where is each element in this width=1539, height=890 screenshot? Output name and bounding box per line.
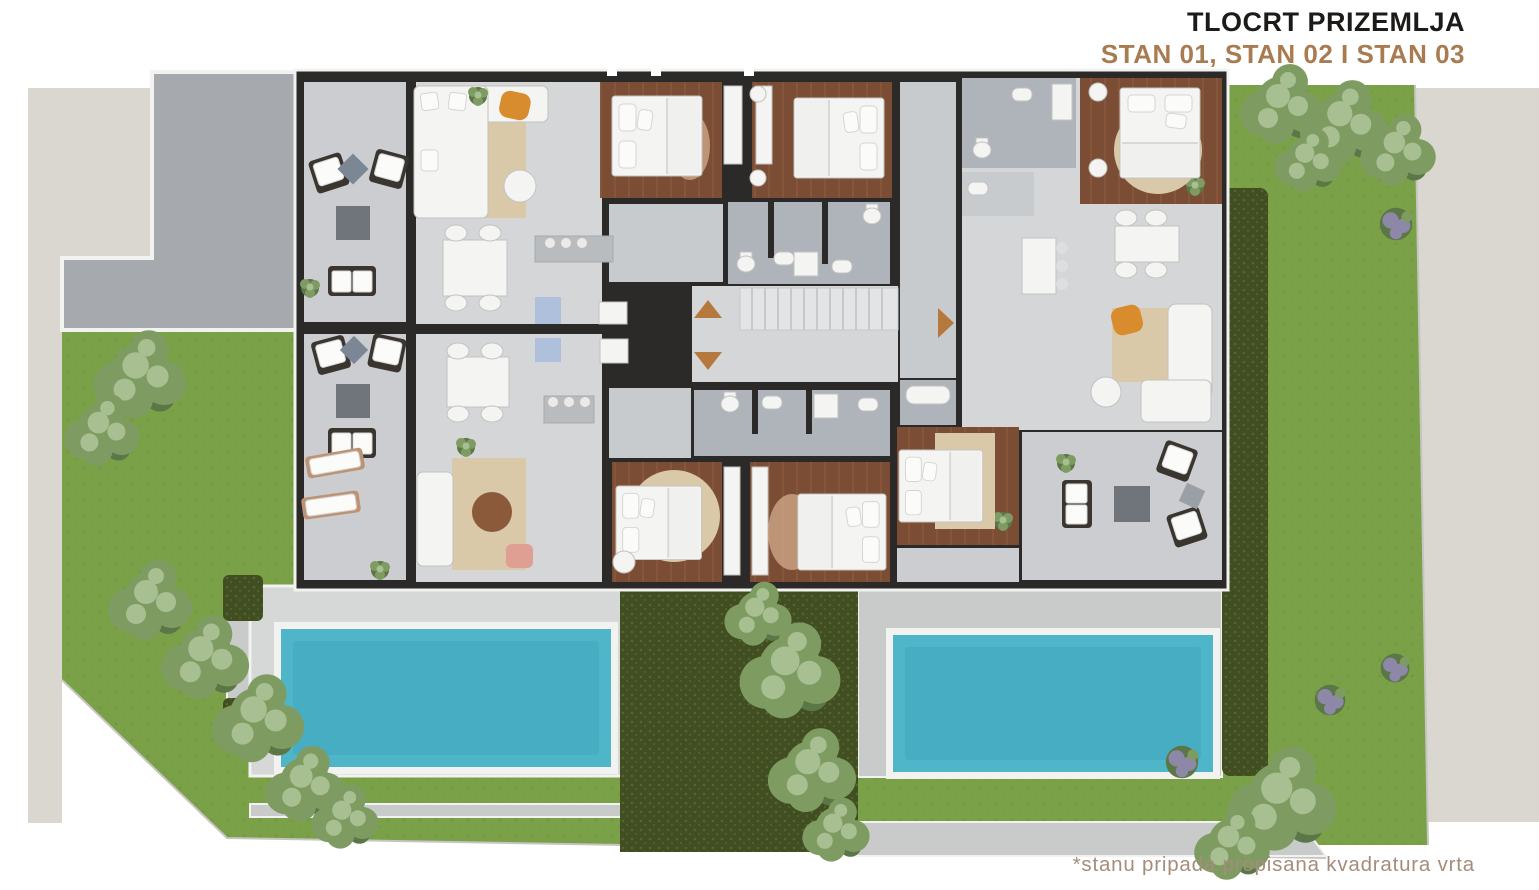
bed	[798, 494, 886, 570]
page-title: TLOCRT PRIZEMLJA	[1101, 8, 1465, 37]
pouf	[504, 170, 536, 202]
dining-table	[447, 357, 509, 407]
nightstand	[1089, 159, 1107, 177]
hedge	[223, 575, 263, 621]
dining-table	[443, 240, 507, 296]
rug-accent	[472, 492, 512, 532]
nightstand	[613, 551, 635, 573]
sofa	[417, 472, 453, 566]
staircase	[740, 288, 898, 330]
dining-table	[1115, 226, 1179, 262]
coffee-table	[1114, 486, 1150, 522]
nightstand	[750, 86, 766, 102]
bed	[612, 96, 702, 176]
round-table	[1091, 377, 1121, 407]
garden-footnote: *stanu pripada propisana kvadratura vrta	[1073, 853, 1475, 877]
kitchen-appliance	[600, 339, 628, 363]
kitchen-appliance	[535, 297, 561, 324]
kitchen-appliance	[599, 302, 627, 324]
bed	[1120, 88, 1200, 178]
bathtub	[906, 386, 950, 404]
nightstand	[1089, 83, 1107, 101]
bed	[616, 486, 702, 560]
floor-plan-page: TLOCRT PRIZEMLJA STAN 01, STAN 02 I STAN…	[0, 0, 1539, 890]
floor-plan	[0, 0, 1539, 890]
nightstand	[750, 170, 766, 186]
entry-corridor	[900, 82, 956, 378]
kitchen-appliance	[535, 338, 561, 362]
coffee-table	[336, 384, 370, 418]
page-subtitle: STAN 01, STAN 02 I STAN 03	[1101, 40, 1465, 68]
daybed	[1141, 380, 1211, 422]
terrace-stan03-small	[897, 548, 1019, 582]
kitchen-island	[1022, 238, 1056, 294]
parcel-right	[1415, 88, 1539, 822]
bed	[899, 450, 983, 522]
ottoman	[506, 544, 533, 568]
hallway-stan02	[609, 388, 691, 458]
bed	[794, 98, 884, 178]
hallway-stan01	[609, 204, 723, 282]
plan-header: TLOCRT PRIZEMLJA STAN 01, STAN 02 I STAN…	[1101, 8, 1465, 68]
coffee-table	[336, 206, 370, 240]
